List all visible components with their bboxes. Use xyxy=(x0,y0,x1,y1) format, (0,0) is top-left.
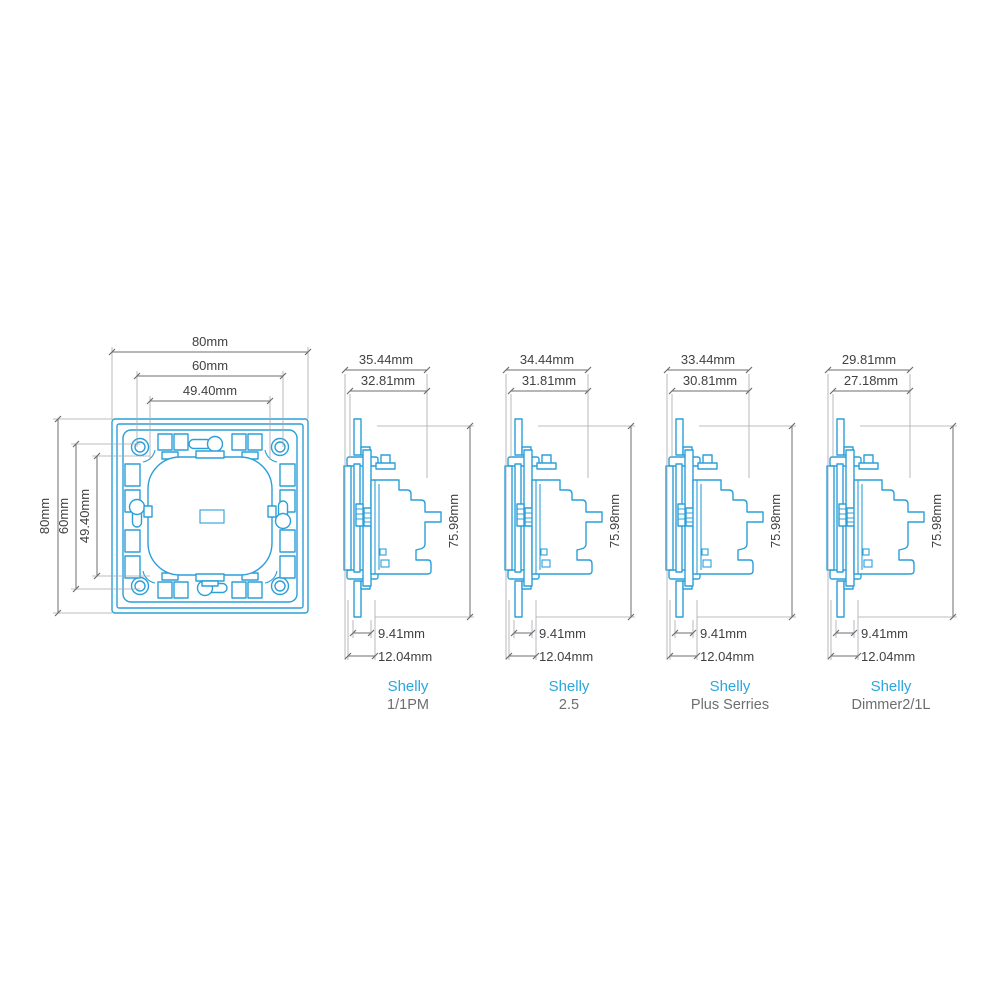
dim-label-front-depth: 9.41mm xyxy=(700,626,747,641)
dim-label-depth-total: 29.81mm xyxy=(842,352,896,367)
brand-label: Shelly xyxy=(388,678,429,695)
dim-label-depth-total: 33.44mm xyxy=(681,352,735,367)
model-label: Plus Serries xyxy=(691,697,769,713)
brand-label: Shelly xyxy=(710,678,751,695)
dim-label-plate-width-middle: 60mm xyxy=(192,358,228,373)
dim-label-plate-height-outer: 80mm xyxy=(37,498,52,534)
dim-label-plate-width-inner: 49.40mm xyxy=(183,383,237,398)
shelly-dimensions-diagram: 80mm 60mm 49.40mm 80mm 60mm 49.40mm 35.4… xyxy=(0,0,1000,1000)
dim-label-front-depth: 9.41mm xyxy=(861,626,908,641)
dim-label-plate-width-outer: 80mm xyxy=(192,334,228,349)
dim-label-depth-inner: 32.81mm xyxy=(361,373,415,388)
device-side-view xyxy=(505,419,602,617)
dim-label-depth-total: 35.44mm xyxy=(359,352,413,367)
dim-label-depth-inner: 30.81mm xyxy=(683,373,737,388)
dim-label-depth-inner: 27.18mm xyxy=(844,373,898,388)
brand-label: Shelly xyxy=(871,678,912,695)
dim-label-depth-inner: 31.81mm xyxy=(522,373,576,388)
dim-label-height: 75.98mm xyxy=(446,494,461,548)
central-module-opening xyxy=(144,451,276,586)
model-label: 2.5 xyxy=(559,697,579,713)
dim-label-depth-total: 34.44mm xyxy=(520,352,574,367)
brand-label: Shelly xyxy=(549,678,590,695)
dim-label-plate-height-middle: 60mm xyxy=(56,498,71,534)
side-view-shelly-dimmer2-1l: 29.81mm 27.18mm 75.98mm 9.41mm 12.04mm S… xyxy=(825,352,957,713)
device-side-view xyxy=(827,419,924,617)
dim-label-plate-height-inner: 49.40mm xyxy=(77,489,92,543)
side-view-shelly-plus-series: 33.44mm 30.81mm 75.98mm 9.41mm 12.04mm S… xyxy=(664,352,796,713)
dim-label-plate-depth: 12.04mm xyxy=(861,649,915,664)
dim-label-plate-depth: 12.04mm xyxy=(378,649,432,664)
model-label: Dimmer2/1L xyxy=(852,697,931,713)
dim-label-front-depth: 9.41mm xyxy=(539,626,586,641)
side-view-shelly-1-1pm: 35.44mm 32.81mm 75.98mm 9.41mm 12.04mm S… xyxy=(342,352,474,713)
dim-label-plate-depth: 12.04mm xyxy=(700,649,754,664)
diagram-canvas: 80mm 60mm 49.40mm 80mm 60mm 49.40mm 35.4… xyxy=(0,0,1000,1000)
dim-label-front-depth: 9.41mm xyxy=(378,626,425,641)
device-side-view xyxy=(666,419,763,617)
dim-label-height: 75.98mm xyxy=(929,494,944,548)
model-label: 1/1PM xyxy=(387,697,429,713)
dim-label-height: 75.98mm xyxy=(607,494,622,548)
device-side-view xyxy=(344,419,441,617)
side-view-shelly-2-5: 34.44mm 31.81mm 75.98mm 9.41mm 12.04mm S… xyxy=(503,352,635,713)
front-view-wall-plate: 80mm 60mm 49.40mm 80mm 60mm 49.40mm xyxy=(37,334,311,616)
dim-label-height: 75.98mm xyxy=(768,494,783,548)
dim-label-plate-depth: 12.04mm xyxy=(539,649,593,664)
